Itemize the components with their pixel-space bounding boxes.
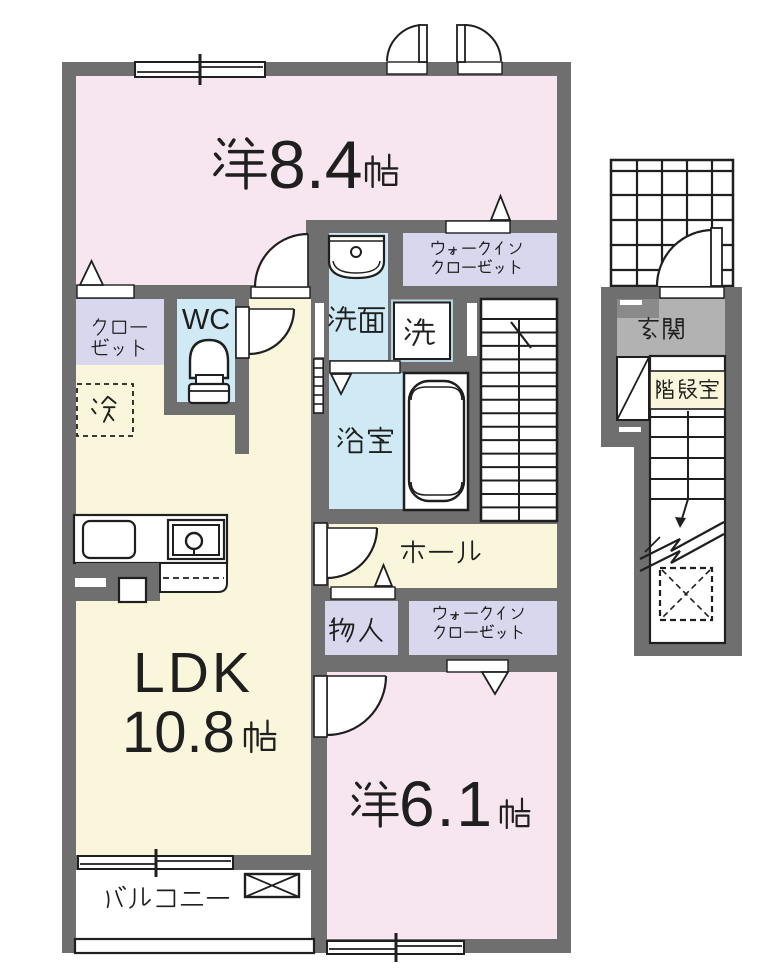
svg-text:8.4: 8.4 bbox=[268, 127, 363, 203]
svg-text:WC: WC bbox=[182, 304, 230, 336]
svg-text:10.8: 10.8 bbox=[122, 700, 235, 765]
svg-text:LDK: LDK bbox=[133, 641, 253, 705]
svg-text:6.1: 6.1 bbox=[399, 768, 494, 840]
